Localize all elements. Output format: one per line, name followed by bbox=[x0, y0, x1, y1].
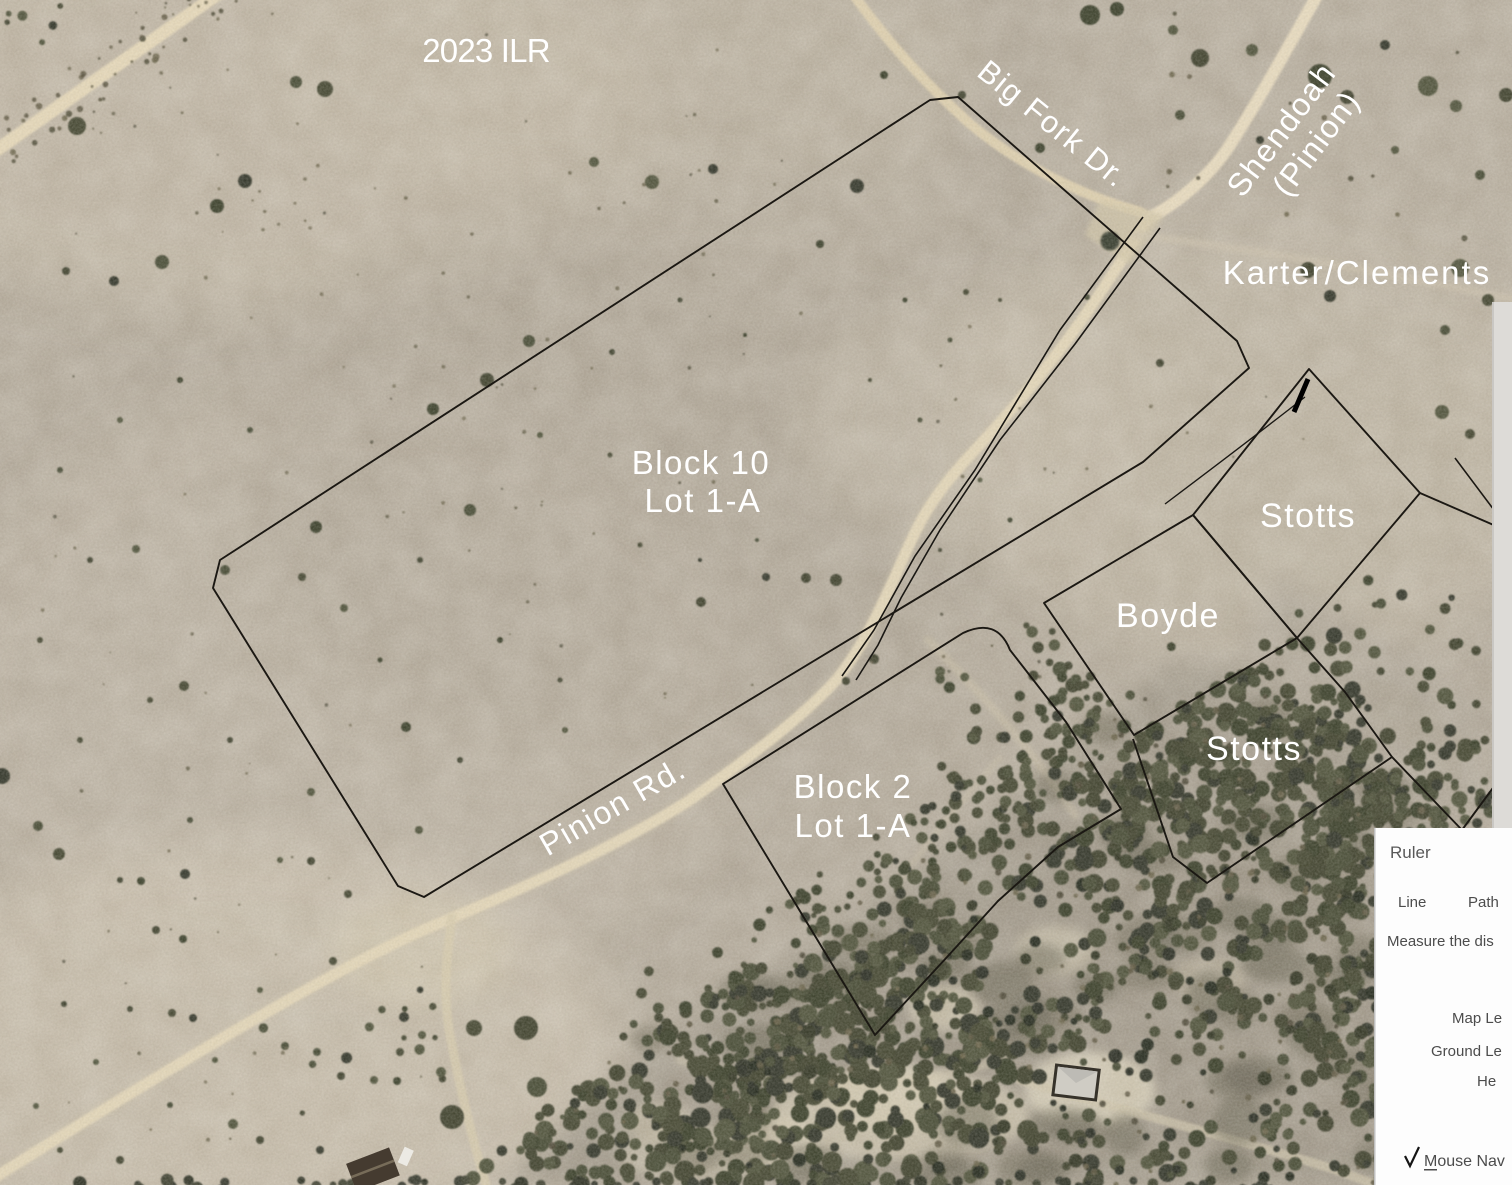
svg-text:Line: Line bbox=[1398, 894, 1426, 911]
svg-text:Karter/Clements: Karter/Clements bbox=[1223, 254, 1491, 291]
svg-text:Map Le: Map Le bbox=[1452, 1010, 1502, 1027]
svg-text:Boyde: Boyde bbox=[1116, 597, 1220, 635]
svg-text:2023 ILR: 2023 ILR bbox=[422, 32, 550, 69]
svg-text:Stotts: Stotts bbox=[1206, 730, 1302, 768]
svg-text:He: He bbox=[1477, 1073, 1496, 1090]
svg-text:Block 10Lot 1-A: Block 10Lot 1-A bbox=[632, 444, 771, 519]
svg-text:Stotts: Stotts bbox=[1260, 497, 1356, 535]
svg-text:Ruler: Ruler bbox=[1390, 843, 1431, 862]
svg-text:Mouse Nav: Mouse Nav bbox=[1424, 1153, 1505, 1170]
svg-text:Ground Le: Ground Le bbox=[1431, 1043, 1502, 1060]
svg-text:Measure the dis: Measure the dis bbox=[1387, 933, 1494, 950]
svg-text:Path: Path bbox=[1468, 894, 1499, 911]
